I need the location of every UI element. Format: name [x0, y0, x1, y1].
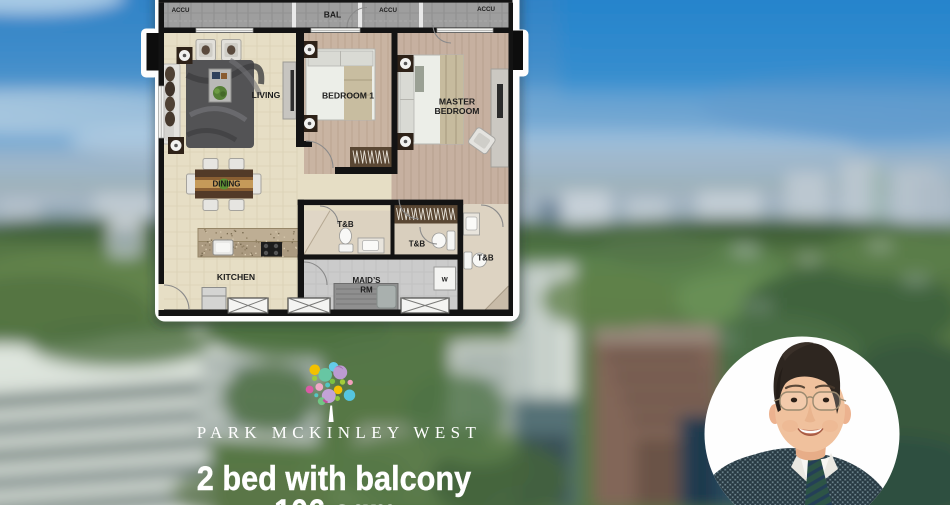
svg-text:BEDROOM 1: BEDROOM 1 [322, 91, 374, 101]
svg-text:BAL: BAL [324, 10, 341, 20]
svg-text:T&B: T&B [477, 254, 494, 263]
svg-text:T&B: T&B [409, 240, 426, 249]
svg-text:LIVING: LIVING [252, 90, 281, 100]
svg-text:RM: RM [360, 286, 373, 295]
svg-text:ACCU: ACCU [477, 6, 495, 13]
svg-text:T&B: T&B [337, 220, 354, 229]
svg-text:DINING: DINING [213, 180, 241, 189]
svg-text:BEDROOM: BEDROOM [435, 106, 480, 116]
svg-text:MAID’S: MAID’S [353, 276, 382, 285]
svg-text:KITCHEN: KITCHEN [217, 272, 255, 282]
svg-text:ACCU: ACCU [172, 7, 190, 14]
svg-text:ACCU: ACCU [379, 7, 397, 14]
svg-text:W: W [442, 277, 449, 284]
svg-text:MASTER: MASTER [439, 97, 476, 107]
